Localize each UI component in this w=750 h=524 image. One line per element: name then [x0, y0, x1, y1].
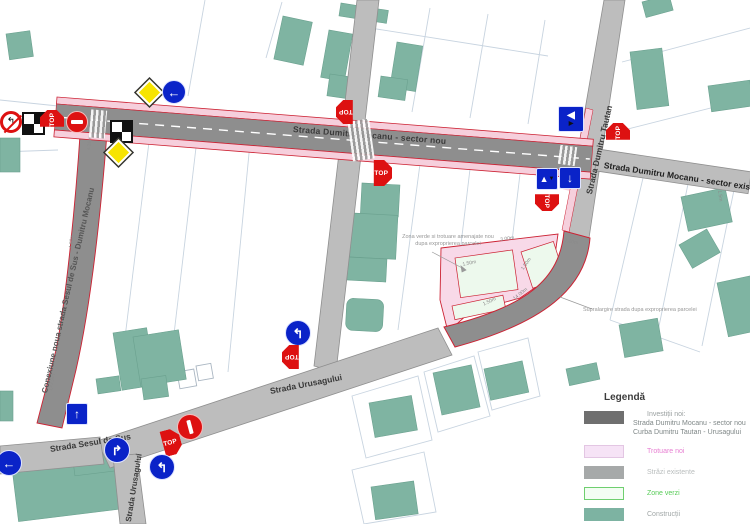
- note-zona-verde: Zona verde si trotuare amenajate nou dup…: [396, 234, 500, 248]
- crosswalk: [558, 145, 577, 166]
- legend-swatch-zone-verzi: [584, 487, 624, 500]
- legend-label-trotuare: Trotuare noi: [647, 448, 684, 457]
- no-left-turn-sign: ↰: [0, 111, 22, 133]
- legend-item-zone-verzi: Zone verzi: [584, 487, 748, 500]
- legend-item-strazi: Străzi existente: [584, 466, 748, 479]
- priority-big-arrow-icon: ◀: [567, 111, 575, 121]
- mandatory-left-sign: ←: [162, 80, 186, 104]
- note-supralargire: Supralargire strada dupa exproprierea pa…: [583, 307, 733, 314]
- site-plan-map: Strada Dumitru Mocanu - sector nou Strad…: [0, 0, 750, 524]
- turn-left-sign: ↰: [285, 320, 311, 346]
- crosswalk: [89, 109, 107, 138]
- left-arrow-icon: ←: [168, 86, 181, 99]
- priority-small-arrow-icon: ▶: [569, 121, 574, 127]
- no-entry-bar-icon: [186, 419, 193, 434]
- grid-cell: [122, 122, 132, 132]
- legend: Legendă Investiții noi: Strada Dumitru M…: [584, 392, 748, 524]
- legend-item-trotuare: Trotuare noi: [584, 445, 748, 458]
- grid-cell: [24, 124, 34, 134]
- legend-label-line: Curba Dumitru Tautan - Urusagului: [633, 429, 746, 438]
- turn-right-icon: ↱: [112, 444, 123, 457]
- down-arrow-icon: ↓: [567, 172, 573, 184]
- left-arrow-icon: ←: [3, 457, 16, 470]
- legend-item-constructii: Construcții: [584, 508, 748, 521]
- up-arrow-icon: ↑: [74, 408, 80, 420]
- turn-left-icon: ↰: [293, 327, 304, 340]
- legend-label-line: Investiții noi:: [647, 411, 746, 420]
- one-way-sign: ↑: [66, 403, 88, 425]
- note-zona-verde-line2: dupa exproprierea parcelei: [396, 241, 500, 248]
- grid-cell: [122, 132, 132, 142]
- grid-cell: [112, 122, 122, 132]
- no-entry-bar-icon: [71, 120, 83, 124]
- legend-label-line: Strada Dumitru Mocanu - sector nou: [633, 420, 746, 429]
- mandatory-down-sign: ↓: [559, 167, 581, 189]
- legend-label-strazi: Străzi existente: [647, 469, 695, 478]
- legend-title: Legendă: [604, 392, 748, 403]
- legend-swatch-trotuare: [584, 445, 624, 458]
- legend-swatch-constructii: [584, 508, 624, 521]
- legend-swatch-investitii: [584, 411, 624, 424]
- legend-item-investitii: Investiții noi: Strada Dumitru Mocanu - …: [584, 411, 748, 437]
- legend-swatch-strazi: [584, 466, 624, 479]
- legend-label-zone-verzi: Zone verzi: [647, 490, 680, 499]
- road-mocanu-new: [54, 97, 593, 179]
- grid-cell: [24, 114, 34, 124]
- no-entry-sign: [66, 111, 88, 133]
- intersection-grid-sign: [110, 120, 133, 143]
- priority-up-arrow-icon: ▲: [540, 175, 549, 184]
- priority-oncoming-sign: ▲ ▼: [536, 168, 558, 190]
- priority-down-arrow-icon: ▼: [548, 176, 554, 182]
- legend-label-constructii: Construcții: [647, 511, 680, 520]
- turn-left-sign: ↰: [149, 454, 175, 480]
- turn-left-icon: ↰: [157, 461, 168, 474]
- turn-right-sign: ↱: [104, 437, 130, 463]
- legend-label-investitii: Investiții noi: Strada Dumitru Mocanu - …: [633, 411, 746, 437]
- note-zona-verde-line1: Zona verde si trotuare amenajate nou: [396, 234, 500, 241]
- priority-over-oncoming-sign: ◀ ▶: [558, 106, 584, 132]
